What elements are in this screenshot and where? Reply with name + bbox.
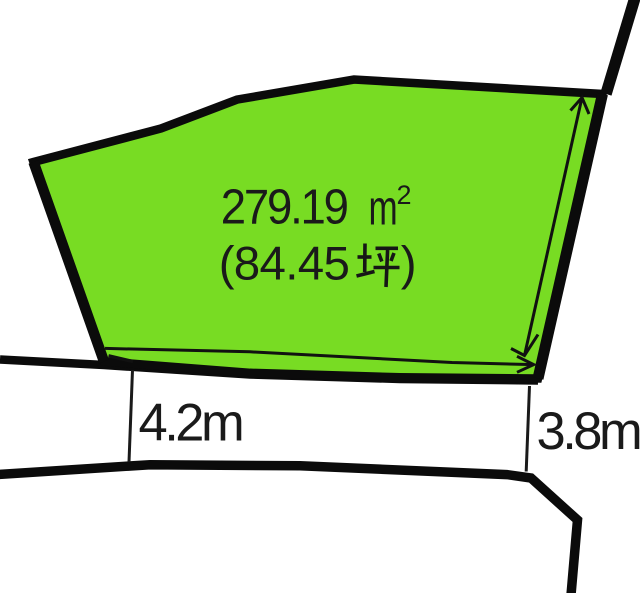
- svg-text:279.19: 279.19: [221, 180, 348, 235]
- svg-text:3.8m: 3.8m: [537, 402, 640, 461]
- svg-text:4.2m: 4.2m: [139, 394, 242, 453]
- svg-text:): ): [401, 238, 417, 291]
- svg-text:m: m: [369, 181, 398, 236]
- svg-text:(84.45: (84.45: [219, 238, 349, 291]
- svg-text:2: 2: [397, 180, 412, 210]
